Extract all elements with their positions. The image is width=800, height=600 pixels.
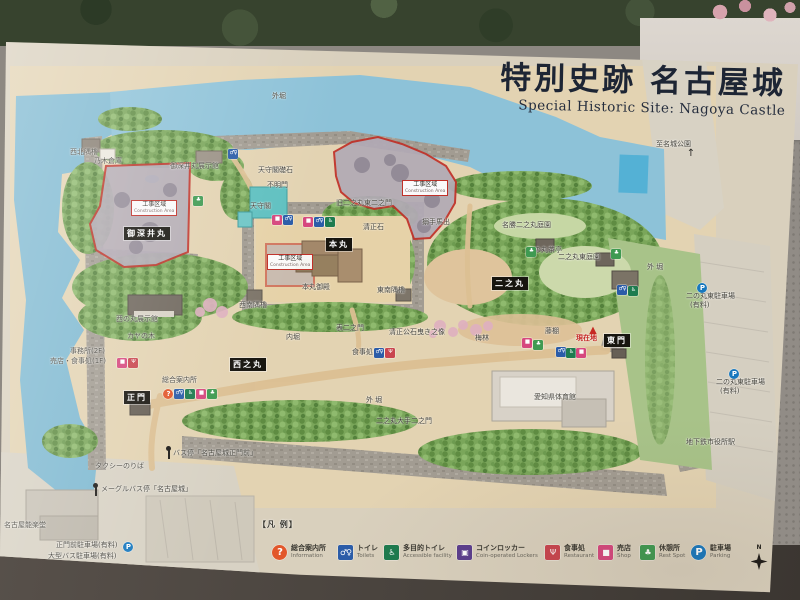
- legend-label-jp: 売店: [617, 545, 631, 552]
- toilet-icon: ♂♀: [314, 217, 324, 227]
- parking-icon: P: [697, 283, 707, 293]
- map-label: 天守閣礎石: [258, 167, 293, 174]
- restaurant-icon: Ψ: [385, 348, 395, 358]
- legend-label-jp: コインロッカー: [476, 545, 525, 552]
- map-sign-board: 特別史跡 名古屋城 Special Historic Site: Nagoya …: [0, 0, 800, 600]
- shop-icon: ■: [196, 389, 206, 399]
- legend-label-jp: 駐車場: [710, 545, 731, 552]
- shop-icon: ■: [272, 215, 282, 225]
- map-label: 東南隅櫓: [377, 287, 405, 294]
- map-annotations: 外堀至名城公園西北隅櫓乃木倉庫御深井丸展示館天守閣礎石不明門天守閣旧二之丸東二之…: [0, 0, 800, 600]
- map-label: 大型バス駐車場(有料): [48, 553, 116, 560]
- map-label: 西北隅櫓: [70, 149, 98, 156]
- map-label: 地下鉄市役所駅: [686, 439, 735, 446]
- restaurant-icon: Ψ: [128, 358, 138, 368]
- legend-label-jp: 総合案内所: [291, 545, 326, 552]
- area-label: 東門: [604, 334, 630, 347]
- map-label: 梅林: [475, 335, 489, 342]
- map-label: 清正公石曳き之像: [389, 329, 445, 336]
- toilet-icon: ♂♀: [283, 215, 293, 225]
- area-label: 二之丸: [492, 277, 528, 290]
- info-icon: ?: [163, 389, 173, 399]
- locker-icon: ▣: [457, 545, 472, 560]
- map-label: 二之丸東庭園: [558, 254, 600, 261]
- accessible-icon: ♿: [185, 389, 195, 399]
- toilet-icon: ♂♀: [228, 149, 238, 159]
- shop-icon: ■: [522, 338, 532, 348]
- parking-icon: P: [729, 369, 739, 379]
- parking-icon: P: [123, 542, 133, 552]
- accessible-icon: ♿: [566, 348, 576, 358]
- legend-label-en: Coin-operated Lockers: [476, 554, 538, 560]
- map-label: 外堀: [272, 93, 286, 100]
- map-label: 天守閣: [250, 203, 271, 210]
- legend-label-en: Accessible facility: [403, 554, 452, 560]
- bus-stop-icon: [91, 483, 100, 496]
- photo-of-map-signboard: 特別史跡 名古屋城 Special Historic Site: Nagoya …: [0, 0, 800, 600]
- info-icon: ?: [272, 545, 287, 560]
- map-label: 愛知県体育館: [534, 394, 576, 401]
- map-label: 総合案内所: [162, 377, 197, 384]
- map-label: 乃木倉庫: [94, 158, 122, 165]
- map-label: カヤの木: [127, 333, 155, 340]
- map-label: バス停「名古屋城正門前」: [173, 450, 257, 457]
- map-label: 西南隅櫓: [239, 302, 267, 309]
- toilet-icon: ♂♀: [374, 348, 384, 358]
- map-label: 内堀: [286, 334, 300, 341]
- map-label: 名古屋能楽堂: [4, 522, 46, 529]
- accessible-icon: ♿: [628, 286, 638, 296]
- compass-north-label: N: [756, 544, 761, 551]
- legend-label-en: Rest Spot: [659, 554, 685, 560]
- legend-label-jp: 食事処: [564, 545, 585, 552]
- legend-label-en: Toilets: [357, 554, 374, 560]
- map-label: 正門前駐車場(有料): [56, 542, 117, 549]
- map-label: 至名城公園: [656, 141, 691, 148]
- shop-icon: ■: [598, 545, 613, 560]
- map-label: 外 堀: [366, 397, 382, 404]
- triangle-icon: ▲: [588, 326, 598, 336]
- map-label: 不明門: [267, 182, 288, 189]
- rest-icon: ♣: [193, 196, 203, 206]
- area-label: 御深井丸: [124, 227, 170, 240]
- map-label: 二の丸東駐車場: [716, 379, 765, 386]
- toilet-icon: ♂♀: [174, 389, 184, 399]
- map-label: 外 堀: [647, 264, 663, 271]
- shop-icon: ■: [303, 217, 313, 227]
- map-label: 二の丸東駐車場: [686, 293, 735, 300]
- map-label: 現在地: [576, 335, 597, 342]
- shop-icon: ■: [117, 358, 127, 368]
- legend-label-jp: トイレ: [357, 545, 378, 552]
- rest-icon: ♣: [207, 389, 217, 399]
- construction-zone-label-jp: 工事区域: [278, 255, 302, 262]
- construction-zone-label: 工事区域Construction Area: [267, 254, 313, 270]
- map-label: 食事処: [352, 349, 373, 356]
- accessible-icon: ♿: [325, 217, 335, 227]
- rest-icon: ♣: [611, 249, 621, 259]
- toilet-icon: ♂♀: [556, 347, 566, 357]
- construction-zone-label-en: Construction Area: [405, 189, 445, 194]
- restaurant-icon: Ψ: [545, 545, 560, 560]
- map-label: タクシーのりば: [95, 463, 144, 470]
- map-label: 事務所(2F): [70, 348, 105, 355]
- area-label: 西之丸: [230, 358, 266, 371]
- legend-label-en: Information: [291, 554, 323, 560]
- legend-label-en: Shop: [617, 554, 631, 560]
- toilet-icon: ♂♀: [338, 545, 353, 560]
- map-label: 売店・食事処(1F): [50, 358, 106, 365]
- legend-heading: 【凡 例】: [258, 521, 298, 529]
- arrow-icon: ↑: [686, 149, 696, 159]
- legend-label-jp: 休憩所: [659, 545, 680, 552]
- area-label: 本丸: [326, 238, 352, 251]
- map-label: 旧二之丸東二之門: [336, 200, 392, 207]
- area-label: 正門: [124, 391, 150, 404]
- compass-star: [751, 553, 768, 570]
- legend-label-en: Restaurant: [564, 554, 594, 560]
- map-label: 名勝二之丸庭園: [502, 222, 551, 229]
- parking-icon: P: [691, 545, 706, 560]
- compass-icon: N: [748, 534, 770, 570]
- shop-icon: ■: [576, 348, 586, 358]
- map-label: 西の丸展示館: [116, 316, 158, 323]
- construction-zone-label: 工事区域Construction Area: [402, 180, 448, 196]
- map-label: 二之丸大手二之門: [376, 418, 432, 425]
- map-label: 御深井丸展示館: [170, 163, 219, 170]
- construction-zone-label-jp: 工事区域: [142, 201, 166, 208]
- legend-label-jp: 多目的トイレ: [403, 545, 445, 552]
- map-label: (有料): [720, 388, 739, 395]
- blossom-tree: [700, 0, 800, 30]
- construction-zone-label-jp: 工事区域: [413, 181, 437, 188]
- map-label: 搦手馬出: [422, 219, 450, 226]
- bus-stop-icon: [164, 446, 173, 459]
- legend-label-en: Parking: [710, 554, 730, 560]
- toilet-icon: ♂♀: [617, 285, 627, 295]
- construction-zone-label: 工事区域Construction Area: [131, 200, 177, 216]
- rest-icon: ♣: [526, 247, 536, 257]
- construction-zone-label-en: Construction Area: [134, 209, 174, 214]
- map-label: (有料): [690, 302, 709, 309]
- accessible-icon: ♿: [384, 545, 399, 560]
- construction-zone-label-en: Construction Area: [270, 263, 310, 268]
- map-label: 藤棚: [545, 328, 559, 335]
- map-label: 本丸御殿: [302, 284, 330, 291]
- rest-icon: ♣: [533, 340, 543, 350]
- map-label: 表二之門: [336, 325, 364, 332]
- rest-icon: ♣: [640, 545, 655, 560]
- map-label: 清正石: [363, 224, 384, 231]
- map-label: メーグルバス停「名古屋城」: [101, 486, 192, 493]
